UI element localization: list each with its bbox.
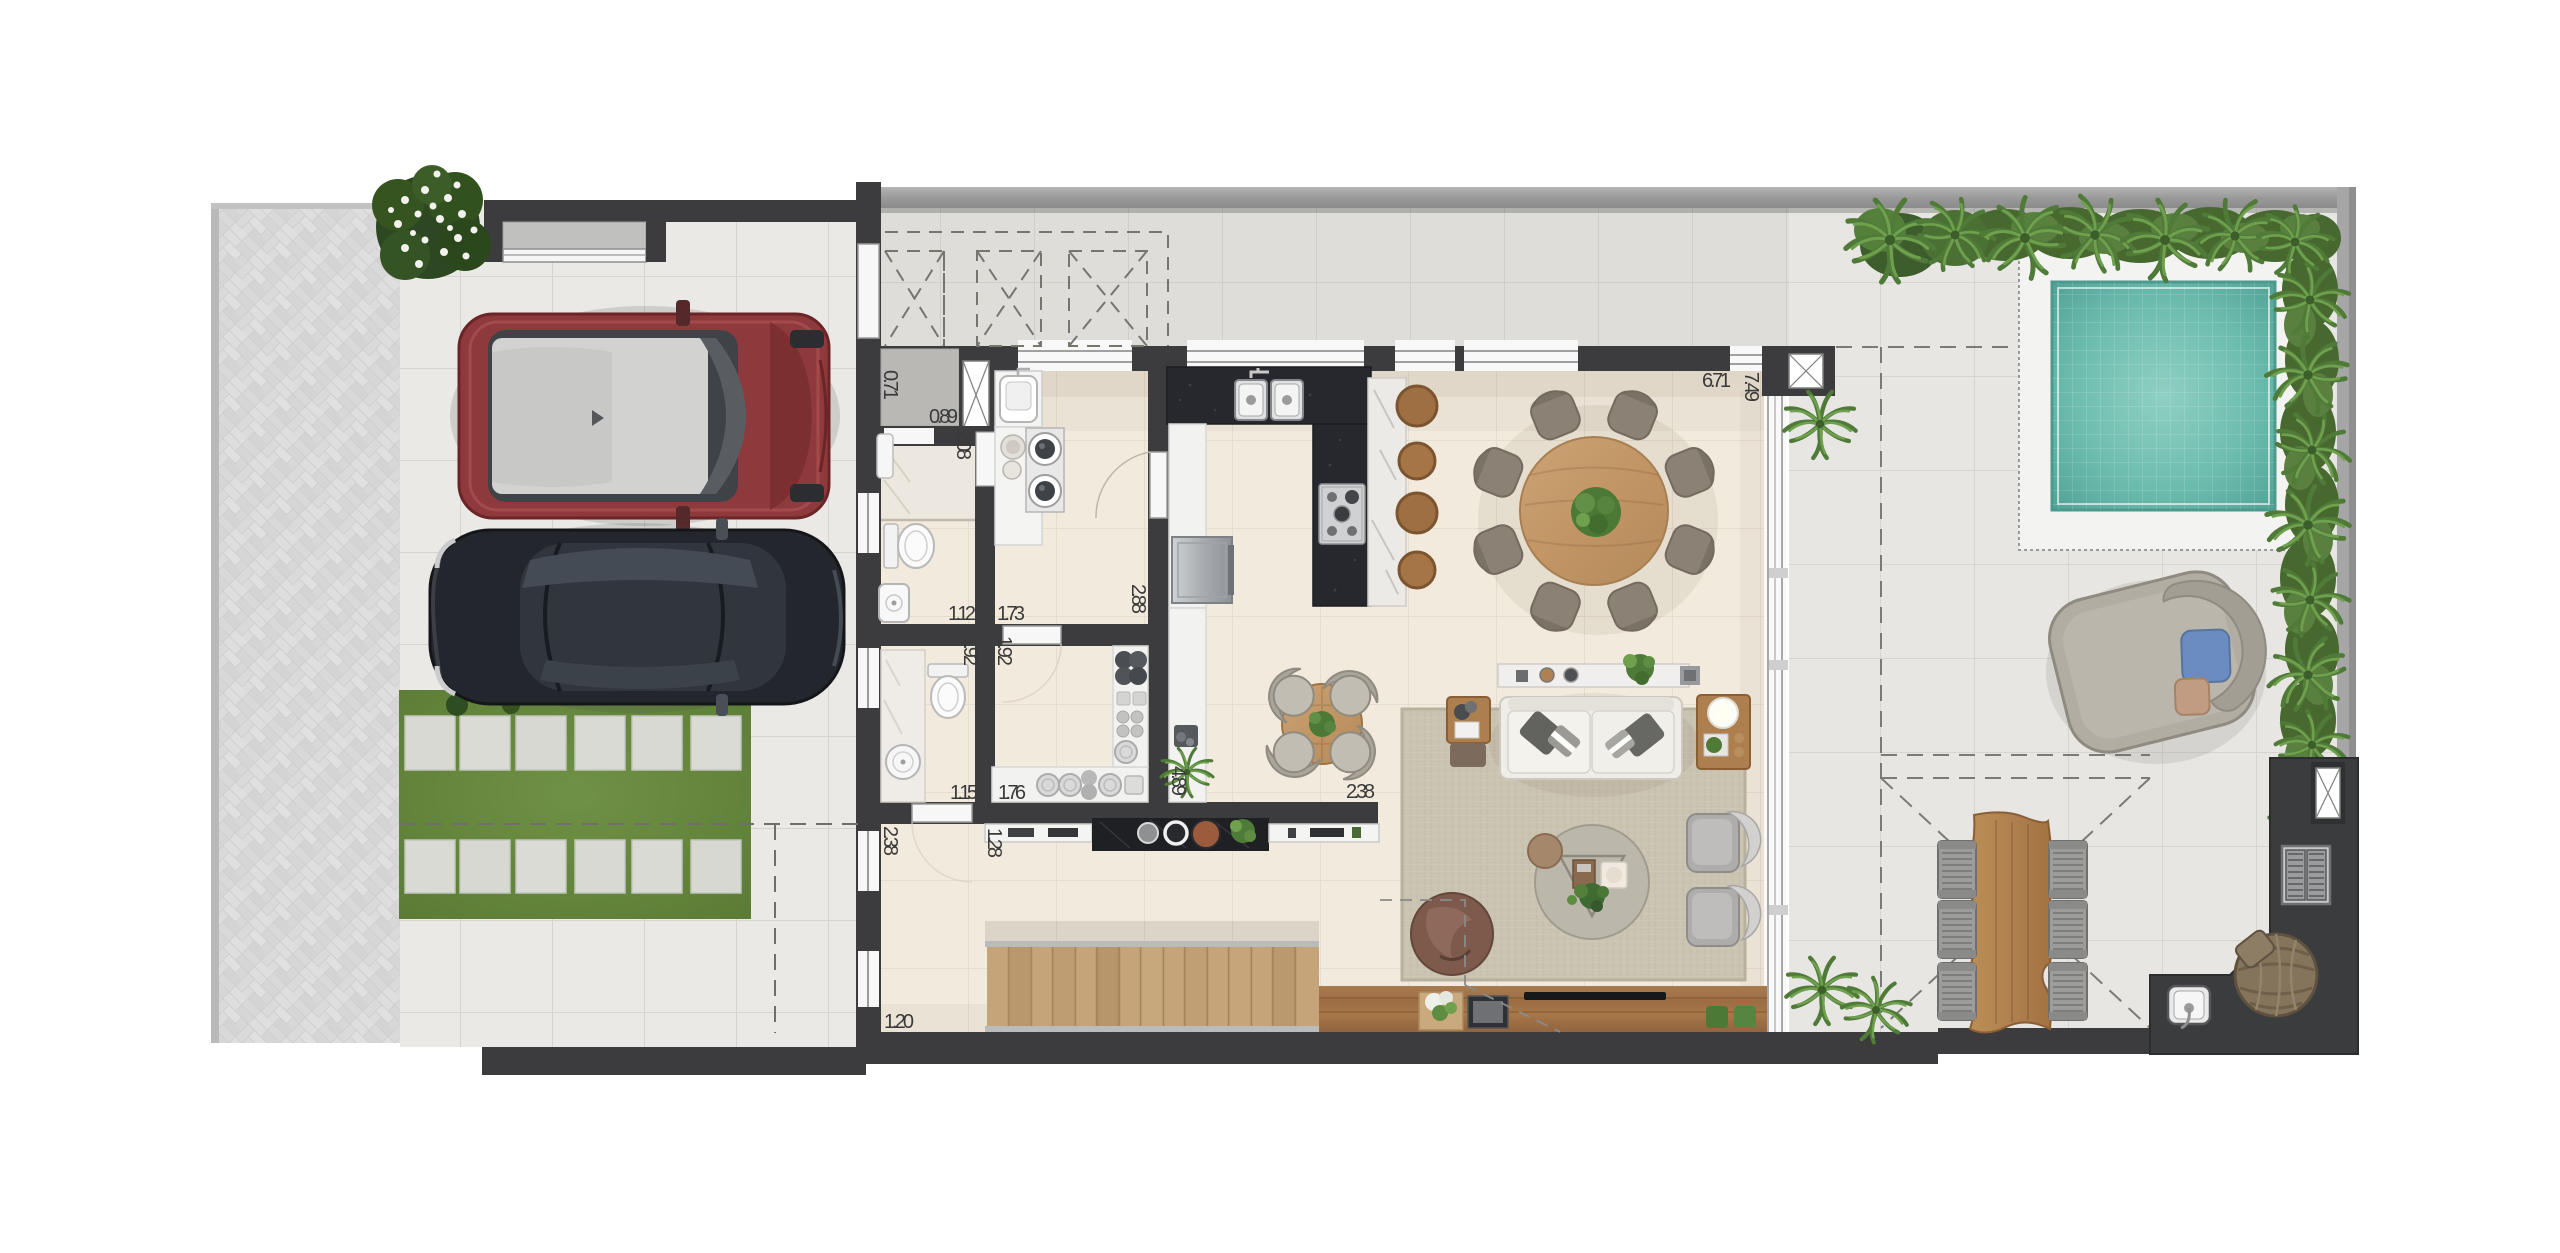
- svg-text:1.92: 1.92: [959, 636, 981, 666]
- svg-text:1.92: 1.92: [993, 636, 1015, 666]
- svg-text:7.49: 7.49: [1740, 372, 1762, 402]
- svg-text:1.73: 1.73: [997, 603, 1025, 625]
- svg-text:6.71: 6.71: [1702, 370, 1731, 392]
- svg-text:1.76: 1.76: [998, 782, 1026, 804]
- svg-text:2.38: 2.38: [879, 826, 901, 856]
- svg-text:2.38: 2.38: [1346, 781, 1375, 803]
- svg-text:2.88: 2.88: [1127, 584, 1149, 614]
- svg-text:4.89: 4.89: [1167, 766, 1189, 796]
- svg-text:0.89: 0.89: [929, 406, 958, 428]
- svg-text:2.08: 2.08: [952, 430, 974, 460]
- svg-text:1.12: 1.12: [948, 603, 976, 625]
- svg-text:1.28: 1.28: [983, 828, 1005, 858]
- svg-text:1.20: 1.20: [884, 1011, 914, 1033]
- svg-text:1.15: 1.15: [950, 782, 978, 804]
- svg-text:0.71: 0.71: [879, 370, 901, 400]
